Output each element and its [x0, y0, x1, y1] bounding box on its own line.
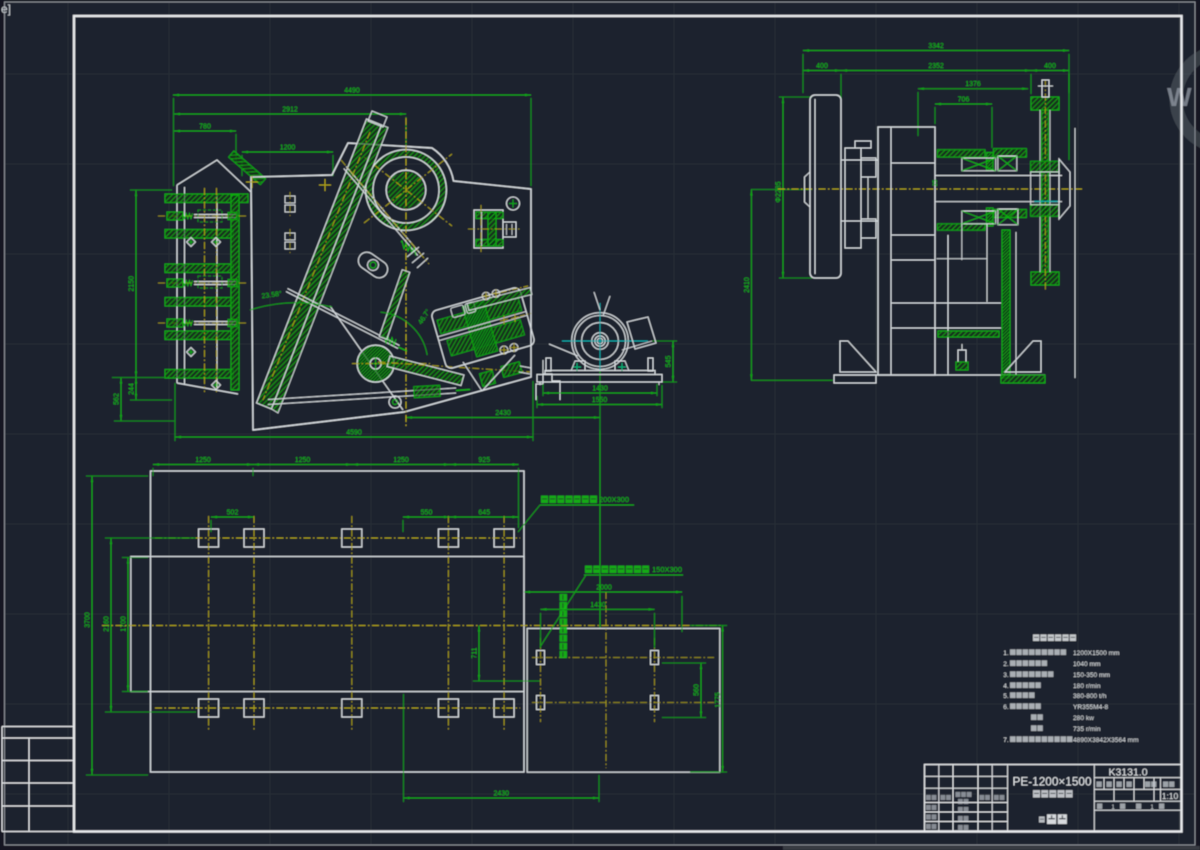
- svg-text:1250: 1250: [295, 457, 311, 464]
- svg-text:244: 244: [129, 383, 136, 395]
- svg-text:Φ2285: Φ2285: [776, 181, 783, 202]
- svg-text:560: 560: [694, 684, 701, 696]
- svg-text:1550: 1550: [592, 397, 608, 404]
- svg-text:400: 400: [1044, 63, 1056, 70]
- svg-text:1250: 1250: [393, 457, 409, 464]
- svg-text:2000: 2000: [596, 585, 612, 592]
- svg-text:1376: 1376: [965, 81, 981, 88]
- svg-text:2430: 2430: [495, 410, 511, 417]
- svg-text:1:10: 1:10: [1162, 791, 1179, 801]
- svg-text:2150: 2150: [129, 276, 136, 292]
- svg-text:4890X3842X3564 mm: 4890X3842X3564 mm: [1073, 737, 1139, 744]
- svg-text:3.: 3.: [1003, 672, 1009, 679]
- svg-text:1430: 1430: [590, 602, 606, 609]
- svg-text:6.: 6.: [1003, 704, 1009, 711]
- svg-text:4490: 4490: [344, 88, 360, 95]
- svg-text:K3131.0: K3131.0: [1108, 767, 1147, 779]
- svg-text:150-350 mm: 150-350 mm: [1073, 672, 1111, 679]
- svg-text:780: 780: [199, 124, 211, 131]
- svg-text:925: 925: [478, 457, 490, 464]
- svg-text:1700: 1700: [121, 616, 128, 632]
- svg-text:2352: 2352: [928, 63, 944, 70]
- svg-text:645: 645: [478, 510, 490, 517]
- svg-text:2160: 2160: [104, 616, 111, 632]
- svg-text:706: 706: [958, 97, 970, 104]
- svg-text:2430: 2430: [493, 791, 509, 798]
- svg-text:25: 25: [933, 179, 939, 186]
- svg-text:4.: 4.: [1003, 683, 1009, 690]
- svg-text:YR355M4-8: YR355M4-8: [1073, 704, 1109, 711]
- svg-text:502: 502: [227, 510, 239, 517]
- svg-text:562: 562: [114, 393, 121, 405]
- svg-text:PE-1200×1500: PE-1200×1500: [1012, 775, 1091, 789]
- svg-text:150X300: 150X300: [652, 565, 682, 574]
- svg-text:1200: 1200: [280, 145, 296, 152]
- svg-text:550: 550: [421, 510, 433, 517]
- svg-text:4590: 4590: [346, 430, 362, 437]
- svg-text:280 kw: 280 kw: [1073, 715, 1094, 722]
- svg-text:3342: 3342: [928, 43, 944, 50]
- svg-text:1775: 1775: [715, 692, 722, 708]
- svg-text:1200X1500 mm: 1200X1500 mm: [1073, 650, 1120, 657]
- svg-text:545: 545: [666, 356, 673, 368]
- svg-text:5.: 5.: [1003, 693, 1009, 700]
- svg-text:2410: 2410: [744, 277, 751, 293]
- svg-text:180 r/min: 180 r/min: [1073, 683, 1101, 690]
- svg-text:W: W: [1167, 82, 1192, 112]
- svg-text:3700: 3700: [85, 612, 92, 628]
- svg-text:2912: 2912: [282, 107, 298, 114]
- svg-text:e]: e]: [1, 2, 11, 16]
- svg-text:2.: 2.: [1003, 661, 1009, 668]
- svg-text:7.: 7.: [1003, 737, 1009, 744]
- svg-text:200X300: 200X300: [599, 495, 629, 504]
- svg-text:380-800 t/h: 380-800 t/h: [1073, 693, 1107, 700]
- svg-text:1.: 1.: [1003, 650, 1009, 657]
- svg-text:1250: 1250: [195, 457, 211, 464]
- svg-text:735 r/min: 735 r/min: [1073, 726, 1101, 733]
- svg-text:1040 mm: 1040 mm: [1073, 661, 1101, 668]
- svg-text:400: 400: [816, 63, 828, 70]
- svg-text:711: 711: [472, 647, 479, 658]
